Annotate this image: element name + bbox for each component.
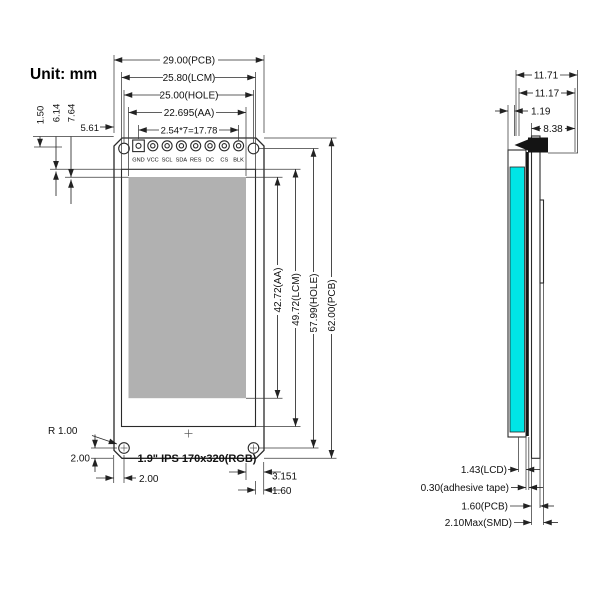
svg-text:2.00: 2.00 bbox=[71, 454, 91, 465]
mounting-hole-bottom-right bbox=[248, 443, 259, 454]
svg-text:11.17: 11.17 bbox=[535, 89, 560, 100]
svg-text:22.695(AA): 22.695(AA) bbox=[164, 108, 215, 119]
svg-text:5.61: 5.61 bbox=[81, 123, 100, 134]
lcd-active-side bbox=[510, 167, 525, 432]
dim-side-header: 8.38 bbox=[532, 124, 576, 135]
svg-text:1.43(LCD): 1.43(LCD) bbox=[461, 465, 507, 476]
front-view: GND VCC SCL SDA RES DC CS BLK 1.9" IPS 1… bbox=[33, 55, 338, 497]
svg-text:49.72(LCM): 49.72(LCM) bbox=[291, 273, 302, 326]
svg-text:3.151: 3.151 bbox=[272, 472, 297, 483]
dim-side-inner: 11.17 bbox=[519, 89, 575, 100]
unit-label: Unit: mm bbox=[30, 66, 97, 83]
dim-side-total: 11.71 bbox=[516, 71, 578, 82]
svg-text:0.30(adhesive tape): 0.30(adhesive tape) bbox=[421, 483, 509, 494]
pin-label-vcc: VCC bbox=[147, 158, 159, 164]
svg-text:42.72(AA): 42.72(AA) bbox=[273, 267, 284, 312]
dim-pin-pitch: 2.54*7=17.78 bbox=[139, 126, 239, 137]
dim-hole-bottom-offset: 2.00 bbox=[71, 435, 117, 473]
dim-smd-thickness: 2.10Max(SMD) bbox=[445, 518, 558, 529]
dim-corner-radius: R 1.00 bbox=[48, 426, 117, 444]
dim-pin-left-offset: 5.61 bbox=[81, 123, 114, 134]
smd-component-side bbox=[540, 200, 544, 283]
svg-text:29.00(PCB): 29.00(PCB) bbox=[163, 56, 215, 67]
pin-label-dc: DC bbox=[206, 158, 214, 164]
dim-lcm-top-offset: 6.14 bbox=[52, 104, 63, 123]
svg-text:1.60(PCB): 1.60(PCB) bbox=[461, 502, 508, 513]
pcb-side bbox=[532, 136, 541, 458]
dim-pcb-width: 29.00(PCB) bbox=[114, 56, 264, 67]
svg-text:R 1.00: R 1.00 bbox=[48, 426, 78, 437]
dim-lcm-right-to-pcb: 1.60 bbox=[238, 481, 292, 497]
svg-text:62.00(PCB): 62.00(PCB) bbox=[327, 279, 338, 331]
svg-text:11.71: 11.71 bbox=[534, 71, 559, 82]
module-title: 1.9" IPS 170x320(RGB) bbox=[138, 453, 257, 465]
lcd-module-dimension-drawing: Unit: mm bbox=[0, 0, 600, 600]
dim-pcb-height: 62.00(PCB) bbox=[327, 138, 338, 458]
svg-text:25.00(HOLE): 25.00(HOLE) bbox=[160, 91, 219, 102]
dim-tape-thickness: 0.30(adhesive tape) bbox=[421, 483, 543, 494]
dim-aa-width: 22.695(AA) bbox=[129, 108, 247, 119]
svg-text:25.80(LCM): 25.80(LCM) bbox=[163, 73, 216, 84]
dim-side-cover: 1.19 bbox=[495, 107, 551, 118]
dim-lcd-thickness: 1.43(LCD) bbox=[461, 465, 540, 476]
dim-lcm-height: 49.72(LCM) bbox=[291, 169, 302, 426]
mounting-hole-bottom-left bbox=[119, 443, 130, 454]
dim-aa-height: 42.72(AA) bbox=[273, 177, 284, 398]
svg-text:1.19: 1.19 bbox=[531, 107, 551, 118]
active-area bbox=[129, 177, 247, 398]
pin-label-cs: CS bbox=[220, 158, 228, 164]
svg-text:2.54*7=17.78: 2.54*7=17.78 bbox=[161, 126, 218, 137]
pin-label-res: RES bbox=[190, 158, 202, 164]
dim-aa-top-offset: 7.64 bbox=[67, 104, 78, 123]
mounting-hole-top-left bbox=[119, 143, 130, 154]
pin-label-sda: SDA bbox=[176, 158, 188, 164]
svg-text:2.00: 2.00 bbox=[139, 474, 159, 485]
dim-hole-height: 57.99(HOLE) bbox=[309, 149, 320, 449]
dim-hole-width: 25.00(HOLE) bbox=[124, 91, 254, 102]
svg-text:8.38: 8.38 bbox=[543, 124, 563, 135]
side-view: 11.71 11.17 1.19 8.38 1.43(LCD bbox=[421, 70, 578, 529]
dim-pin-row-offset: 1.50 bbox=[36, 106, 47, 125]
pin-label-scl: SCL bbox=[162, 158, 173, 164]
pin-label-gnd: GND bbox=[132, 158, 144, 164]
dim-lcm-width: 25.80(LCM) bbox=[122, 73, 256, 84]
mounting-hole-top-right bbox=[248, 143, 259, 154]
svg-text:2.10Max(SMD): 2.10Max(SMD) bbox=[445, 518, 512, 529]
pin-label-blk: BLK bbox=[233, 158, 244, 164]
drawing-canvas: Unit: mm bbox=[0, 0, 600, 600]
svg-text:57.99(HOLE): 57.99(HOLE) bbox=[309, 274, 320, 333]
svg-text:1.60: 1.60 bbox=[272, 486, 292, 497]
adhesive-layer-side bbox=[526, 152, 529, 436]
